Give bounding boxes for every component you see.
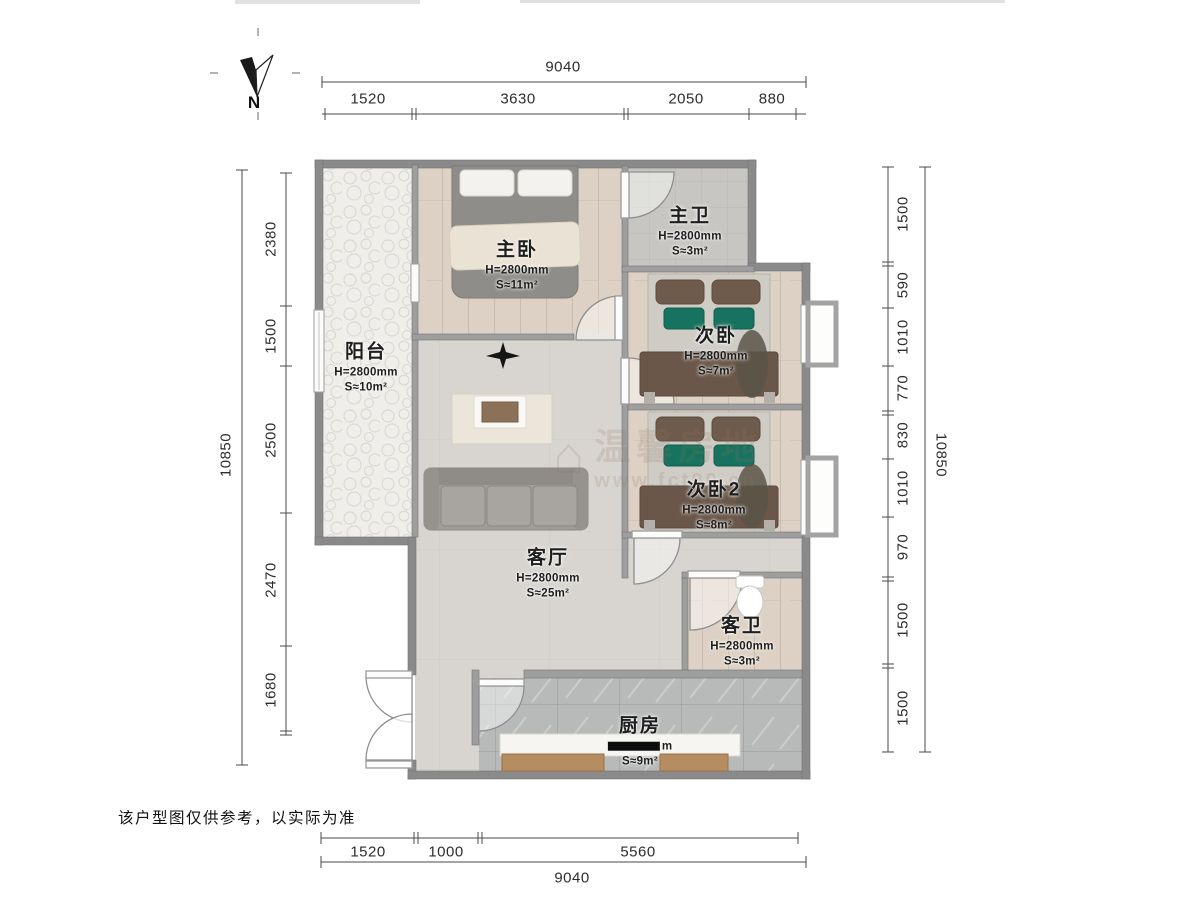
dim-right-seg: 1500 <box>895 602 912 637</box>
compass-north-label: N <box>248 93 260 113</box>
sofa <box>424 468 588 530</box>
room-label-master-bedroom: 主卧 H=2800mm S≈11m² <box>485 239 548 294</box>
dim-top-seg: 2050 <box>668 91 703 108</box>
dim-top-seg: 1520 <box>350 91 385 108</box>
room-label-living: 客厅 H=2800mm S≈25m² <box>516 547 579 602</box>
room-label-master-bath: 主卫 H=2800mm S≈3m² <box>658 205 721 260</box>
dim-right-seg: 1010 <box>895 319 912 354</box>
dim-top-seg: 3630 <box>500 91 535 108</box>
room-label-bedroom2: 次卧 H=2800mm S≈7m² <box>684 325 747 380</box>
dim-left-seg: 2380 <box>263 221 280 256</box>
dim-right-seg: 770 <box>895 375 912 402</box>
dim-left-seg: 1680 <box>263 672 280 707</box>
redaction-bar <box>608 742 660 751</box>
bay-window-bedroom2b <box>808 458 836 535</box>
dim-right-total: 10850 <box>933 433 950 477</box>
dim-left-total: 10850 <box>218 433 235 477</box>
dim-right-seg: 1500 <box>895 690 912 725</box>
dim-bottom-total: 9040 <box>554 870 589 887</box>
coffee-table <box>452 394 552 444</box>
room-label-kitchen: 厨房 m S≈9m² <box>608 715 672 770</box>
dim-right-seg: 970 <box>895 534 912 561</box>
dim-left-seg: 2500 <box>263 422 280 457</box>
entry-door-arc-bottom <box>366 714 412 760</box>
bay-window-bedroom2 <box>808 303 836 365</box>
dim-bottom-seg: 1000 <box>428 844 463 861</box>
room-label-balcony: 阳台 H=2800mm S≈10m² <box>334 341 397 396</box>
dim-bottom-seg: 5560 <box>620 844 655 861</box>
top-edge-artifact <box>520 0 1005 3</box>
floor-plan-drawing <box>0 0 1200 900</box>
toilet <box>736 576 764 618</box>
dim-left-seg: 1500 <box>263 318 280 353</box>
dim-top-total: 9040 <box>545 59 580 76</box>
room-label-bedroom2b: 次卧2 H=2800mm S≈8m² <box>682 479 745 534</box>
floor-plan-page: ⌂ 温馨房地 www.fct00.cn 阳台 H=2800mm S≈10m² 主… <box>0 0 1200 900</box>
dim-left-seg: 2470 <box>263 562 280 597</box>
dim-top-seg: 880 <box>759 91 786 108</box>
dim-right-seg: 1500 <box>895 196 912 231</box>
dim-right-seg: 1010 <box>895 470 912 505</box>
dim-right-seg: 830 <box>895 422 912 449</box>
disclaimer-text: 该户型图仅供参考，以实际为准 <box>118 806 356 828</box>
dim-right-seg: 590 <box>895 272 912 299</box>
top-edge-artifact <box>235 0 420 4</box>
dim-bottom-seg: 1520 <box>350 844 385 861</box>
room-label-guest-bath: 客卫 H=2800mm S≈3m² <box>710 615 773 670</box>
